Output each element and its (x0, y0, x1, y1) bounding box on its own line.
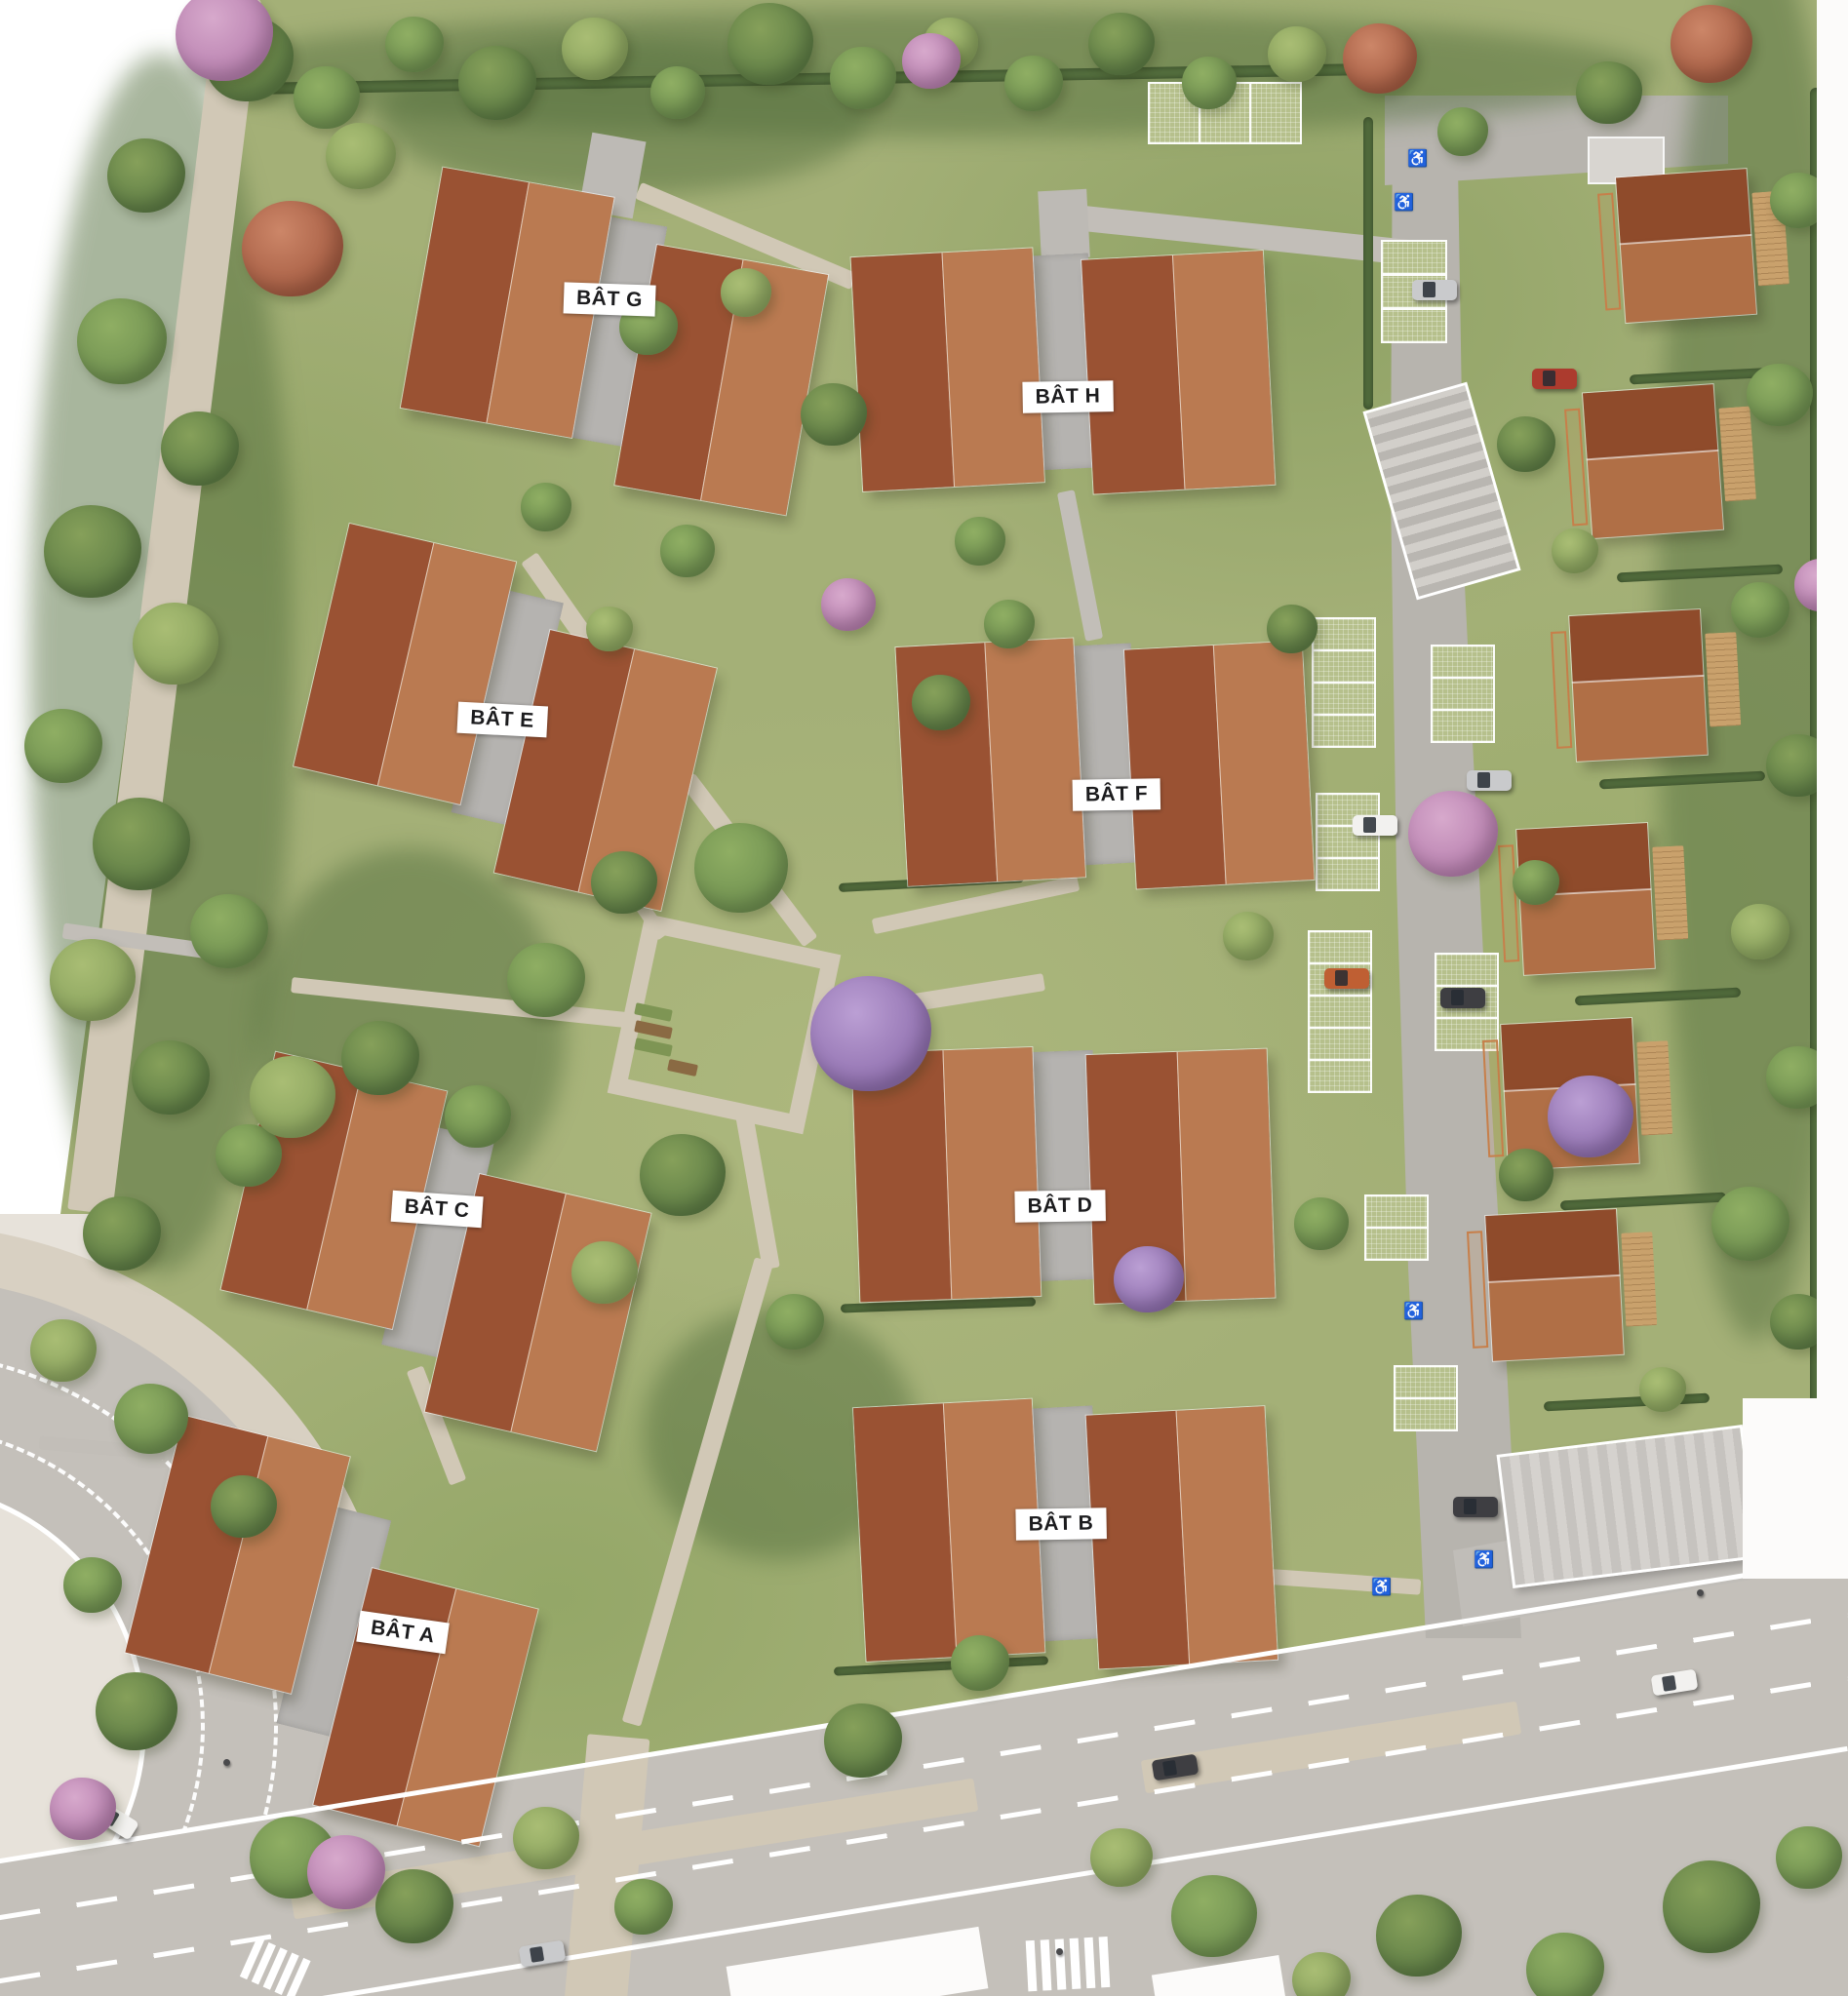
roof-light-slope (1175, 1406, 1278, 1663)
car-windshield (1423, 282, 1435, 296)
footpath (1141, 1702, 1522, 1794)
roof-light-slope (1172, 251, 1275, 489)
parking-bay (1308, 930, 1372, 964)
tree (1114, 1246, 1184, 1312)
tree (1776, 1826, 1842, 1890)
parking-bay (1312, 649, 1376, 684)
scenery-layer: ♿♿♿♿♿BÂT GBÂT HBÂT EBÂT FBÂT CBÂT DBÂT B… (0, 0, 1848, 1996)
tree (1088, 13, 1155, 76)
car-windshield (1543, 371, 1555, 385)
roof-dark-slope (1085, 1411, 1188, 1668)
wooden-deck (1636, 1040, 1672, 1136)
car (1353, 815, 1397, 836)
tree (375, 1869, 453, 1943)
crosswalk-bar (1070, 1938, 1081, 1989)
parking-bay (1308, 995, 1372, 1029)
footpath (1056, 489, 1102, 642)
wooden-deck (1705, 632, 1741, 727)
pergola (1551, 631, 1572, 749)
car-windshield (1464, 1499, 1476, 1513)
car (1324, 968, 1369, 989)
tree (1292, 1952, 1351, 1996)
building-label-g: BÂT G (564, 282, 656, 316)
building-wing (1081, 251, 1275, 493)
tree (1294, 1197, 1349, 1249)
tree (30, 1319, 97, 1383)
crosswalk-bar (1099, 1937, 1111, 1987)
building-g (394, 168, 835, 515)
building-label-d: BÂT D (1014, 1190, 1105, 1223)
car (1467, 770, 1512, 791)
roof-dark-slope (852, 1403, 955, 1661)
tree (242, 201, 343, 297)
tree (1499, 1149, 1553, 1200)
tree (951, 1635, 1009, 1691)
crosswalk-bar (1055, 1938, 1067, 1989)
parking-ramp (1362, 381, 1520, 600)
crosswalk (1026, 1937, 1117, 1992)
offsite-white-area (1152, 1955, 1286, 1996)
tree (660, 525, 715, 576)
footpath (735, 1114, 780, 1271)
pergola (1482, 1039, 1504, 1157)
house-roof-dark-slope (1616, 169, 1750, 244)
house-roof-light-slope (1621, 235, 1756, 323)
car-windshield (530, 1945, 544, 1962)
tree (250, 1056, 335, 1138)
building-label-c: BÂT C (391, 1191, 484, 1228)
tree (326, 123, 396, 189)
wooden-deck (1621, 1232, 1657, 1327)
wheelchair-icon: ♿ (1407, 150, 1428, 167)
crosswalk-bar (1041, 1939, 1052, 1990)
parking-bay (1431, 709, 1495, 743)
offsite-white-area (1817, 0, 1848, 1414)
tree (955, 517, 1005, 565)
building-wing (895, 639, 1085, 886)
parking-bay (1364, 1227, 1429, 1261)
wooden-deck (1652, 845, 1688, 941)
crosswalk-bar (1084, 1937, 1096, 1988)
tree (1513, 860, 1559, 905)
tree (591, 851, 657, 915)
roof-light-slope (941, 248, 1043, 487)
roof-light-slope (941, 1047, 1040, 1299)
parking-bay (1431, 677, 1495, 711)
car-windshield (1662, 1674, 1676, 1691)
building-wing (851, 248, 1044, 490)
tree (640, 1134, 726, 1216)
tree (1437, 107, 1488, 155)
roof-dark-slope (1081, 254, 1184, 493)
tree (614, 1879, 673, 1935)
tree (513, 1807, 579, 1870)
house-roof-light-slope (1573, 676, 1708, 762)
house-roof-light-slope (1489, 1275, 1624, 1361)
wooden-deck (1718, 406, 1756, 501)
tree (1663, 1860, 1760, 1953)
roof-light-slope (1176, 1048, 1275, 1300)
tree (1552, 528, 1598, 573)
parking-bay (1316, 857, 1380, 891)
person-marker (1056, 1948, 1063, 1955)
car-windshield (1363, 817, 1376, 832)
terraced-house (1596, 167, 1791, 326)
hedge-row (1363, 117, 1373, 410)
building-label-e: BÂT E (456, 702, 547, 738)
house-roof-dark-slope (1583, 384, 1717, 459)
tree (521, 483, 571, 530)
car-windshield (1335, 970, 1348, 985)
tree (1223, 912, 1274, 959)
parking-bay (1435, 953, 1499, 987)
terraced-house (1563, 382, 1758, 541)
tree (1548, 1076, 1633, 1157)
building-wing (1124, 641, 1315, 888)
tree (50, 1778, 116, 1841)
parking-bay (1308, 1059, 1372, 1093)
roof-dark-slope (1124, 646, 1226, 888)
car (1440, 988, 1485, 1008)
tree (801, 383, 867, 447)
parking-bay (1312, 617, 1376, 651)
tree (133, 603, 218, 685)
tree (1526, 1933, 1604, 1996)
wheelchair-icon: ♿ (1371, 1579, 1392, 1595)
house-roof-dark-slope (1569, 609, 1703, 683)
tree (1497, 416, 1555, 472)
building-wing (1085, 1406, 1277, 1668)
house-roof-dark-slope (1485, 1209, 1619, 1282)
parking-bay (1431, 645, 1495, 679)
tree (1171, 1875, 1257, 1957)
building-label-h: BÂT H (1022, 380, 1113, 413)
tree (1267, 605, 1317, 652)
building-label-f: BÂT F (1073, 778, 1161, 811)
parking-bay (1308, 1027, 1372, 1061)
tree (1090, 1828, 1153, 1888)
pergola (1498, 844, 1519, 962)
car (1453, 1497, 1498, 1517)
parking-bay (1312, 682, 1376, 716)
car-windshield (1477, 772, 1490, 787)
wheelchair-icon: ♿ (1394, 194, 1414, 211)
tree (1747, 364, 1813, 427)
parking-bay (1394, 1365, 1458, 1399)
site-plan: ♿♿♿♿♿BÂT GBÂT HBÂT EBÂT FBÂT CBÂT DBÂT B… (0, 0, 1848, 1996)
car (1532, 369, 1577, 389)
car (1651, 1668, 1699, 1696)
parking-bay (1249, 82, 1302, 144)
roof-light-slope (984, 639, 1085, 881)
offsite-white-area (727, 1927, 989, 1996)
car-windshield (1451, 990, 1464, 1004)
tree (211, 1475, 277, 1539)
parking-bay (1381, 308, 1447, 343)
wheelchair-icon: ♿ (1403, 1303, 1424, 1319)
pergola (1467, 1231, 1488, 1349)
wheelchair-icon: ♿ (1474, 1551, 1494, 1568)
tree (445, 1085, 511, 1149)
parking-bay (1381, 240, 1447, 275)
roof-light-slope (1213, 641, 1315, 883)
tree (50, 939, 136, 1021)
building-label-b: BÂT B (1015, 1507, 1106, 1541)
building-h (851, 236, 1276, 506)
crosswalk (240, 1937, 315, 1996)
building-d (851, 1038, 1275, 1311)
terraced-house (1466, 1207, 1659, 1363)
terraced-house (1550, 607, 1743, 763)
tree (294, 66, 360, 130)
tree (571, 1241, 638, 1305)
car-windshield (1162, 1759, 1177, 1776)
parking-bay (1364, 1194, 1429, 1229)
offsite-white-area (1743, 1398, 1848, 1579)
tree (1376, 1895, 1462, 1976)
tree (63, 1557, 122, 1613)
tree (562, 18, 628, 81)
parking-bay (1312, 714, 1376, 748)
bike-shelter-canopy (1497, 1425, 1759, 1588)
tree (727, 3, 813, 85)
roof-dark-slope (851, 253, 954, 491)
tree (824, 1703, 902, 1778)
tree (1576, 61, 1642, 125)
tree (1639, 1367, 1686, 1412)
building-f (895, 626, 1314, 900)
tree (830, 47, 896, 110)
person-marker (1697, 1589, 1704, 1596)
parking-bay (1394, 1397, 1458, 1431)
person-marker (223, 1759, 230, 1766)
car (519, 1939, 567, 1967)
crosswalk-bar (1026, 1940, 1038, 1991)
house-roof-light-slope (1588, 450, 1723, 538)
tree (1408, 791, 1498, 876)
car (1412, 280, 1457, 300)
tree (821, 578, 876, 630)
tree (586, 607, 633, 651)
